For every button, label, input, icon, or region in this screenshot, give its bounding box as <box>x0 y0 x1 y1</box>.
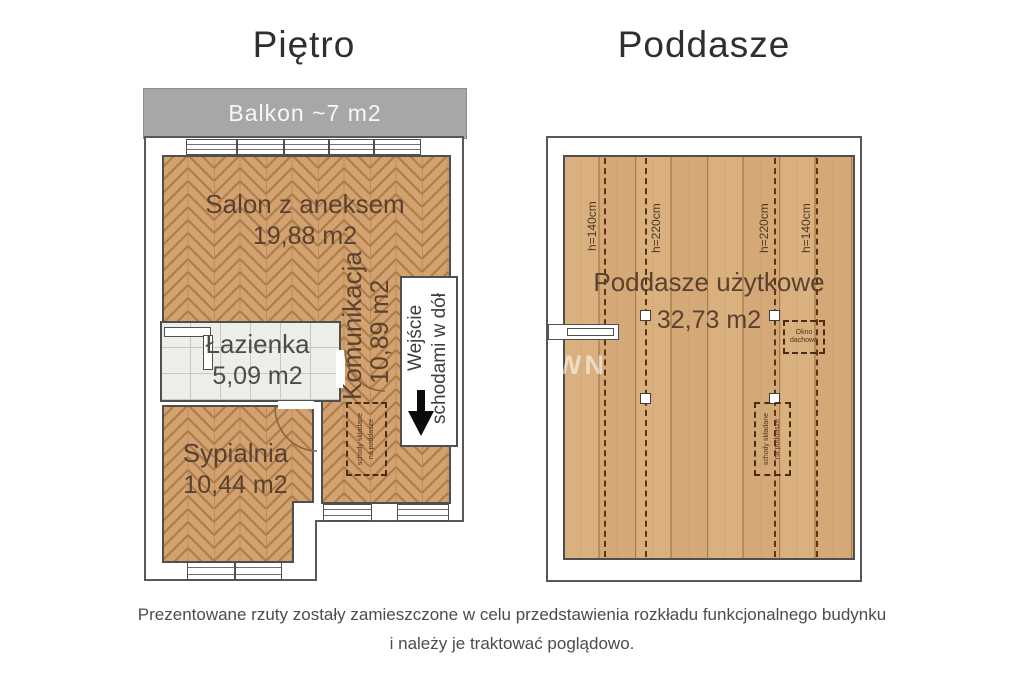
window-mullion <box>234 563 236 579</box>
folding-stairs-box-attic: schody składane na poddasze <box>754 402 791 476</box>
disclaimer-line2: i należy je traktować poglądowo. <box>0 634 1024 654</box>
balcony-label: Balkon ~7 m2 <box>228 100 381 127</box>
roof-height-label-2: h=220cm <box>649 197 663 259</box>
roof-window-line2: dachowe <box>790 337 818 345</box>
room-lazienka-area: 5,09 m2 <box>175 361 340 392</box>
roof-window-line1: Okno <box>796 329 813 337</box>
window-mullion <box>236 140 238 154</box>
window-glass <box>187 144 420 150</box>
folding-stairs-line2: na poddasze <box>774 419 782 459</box>
roof-height-line-3 <box>774 158 776 557</box>
title-pietro: Piętro <box>145 24 463 66</box>
roof-height-line-4 <box>816 158 818 557</box>
folding-stairs-line1: schody składane <box>763 413 771 465</box>
entrance-label-line1: Wejście <box>405 288 427 388</box>
folding-stairs-line1: schody składane <box>357 413 365 465</box>
room-komunikacja-area: 10,89 m2 <box>366 276 395 388</box>
folding-stairs-box-floor1: schody składane na poddasze <box>346 402 387 476</box>
post-marker <box>640 393 651 404</box>
room-lazienka-label: Łazienka 5,09 m2 <box>175 328 340 392</box>
window-mullion <box>283 140 285 154</box>
entrance-label-line2: schodami w dół <box>429 280 451 438</box>
window-mullion <box>373 140 375 154</box>
room-attic-name: Poddasze użytkowe <box>563 266 855 299</box>
roof-height-line-2 <box>645 158 647 557</box>
room-salon-label: Salon z aneksem 19,88 m2 <box>180 188 430 252</box>
title-poddasze: Poddasze <box>546 24 862 66</box>
room-lazienka-name: Łazienka <box>175 328 340 361</box>
post-marker <box>640 310 651 321</box>
folding-stairs-line2: na poddasze <box>368 419 376 459</box>
window-glass <box>398 509 448 516</box>
window-mullion <box>328 140 330 154</box>
salon-window-top <box>186 139 421 155</box>
bedroom-door-arc <box>274 405 319 452</box>
corridor-window-right <box>397 504 449 521</box>
attic-wall-niche-inner <box>567 328 614 336</box>
roof-height-label-1: h=140cm <box>585 195 599 257</box>
floorplan-page: Piętro Poddasze Balkon ~7 m2 <box>0 0 1024 683</box>
room-salon-name: Salon z aneksem <box>180 188 430 221</box>
roof-window-box: Okno dachowe <box>783 320 825 354</box>
window-glass <box>324 509 371 516</box>
stairwell-box: Wejście schodami w dół <box>400 276 458 447</box>
watermark: WN <box>556 350 607 381</box>
roof-height-label-4: h=140cm <box>799 197 813 259</box>
room-salon-area: 19,88 m2 <box>180 221 430 252</box>
room-komunikacja-name: Komunikacja <box>337 258 368 400</box>
balcony: Balkon ~7 m2 <box>143 88 467 139</box>
corridor-window-left <box>323 504 372 521</box>
room-sypialnia-area: 10,44 m2 <box>168 470 303 501</box>
disclaimer-line1: Prezentowane rzuty zostały zamieszczone … <box>0 605 1024 625</box>
bedroom-window <box>187 562 282 580</box>
roof-height-label-3: h=220cm <box>757 197 771 259</box>
post-marker <box>769 310 780 321</box>
